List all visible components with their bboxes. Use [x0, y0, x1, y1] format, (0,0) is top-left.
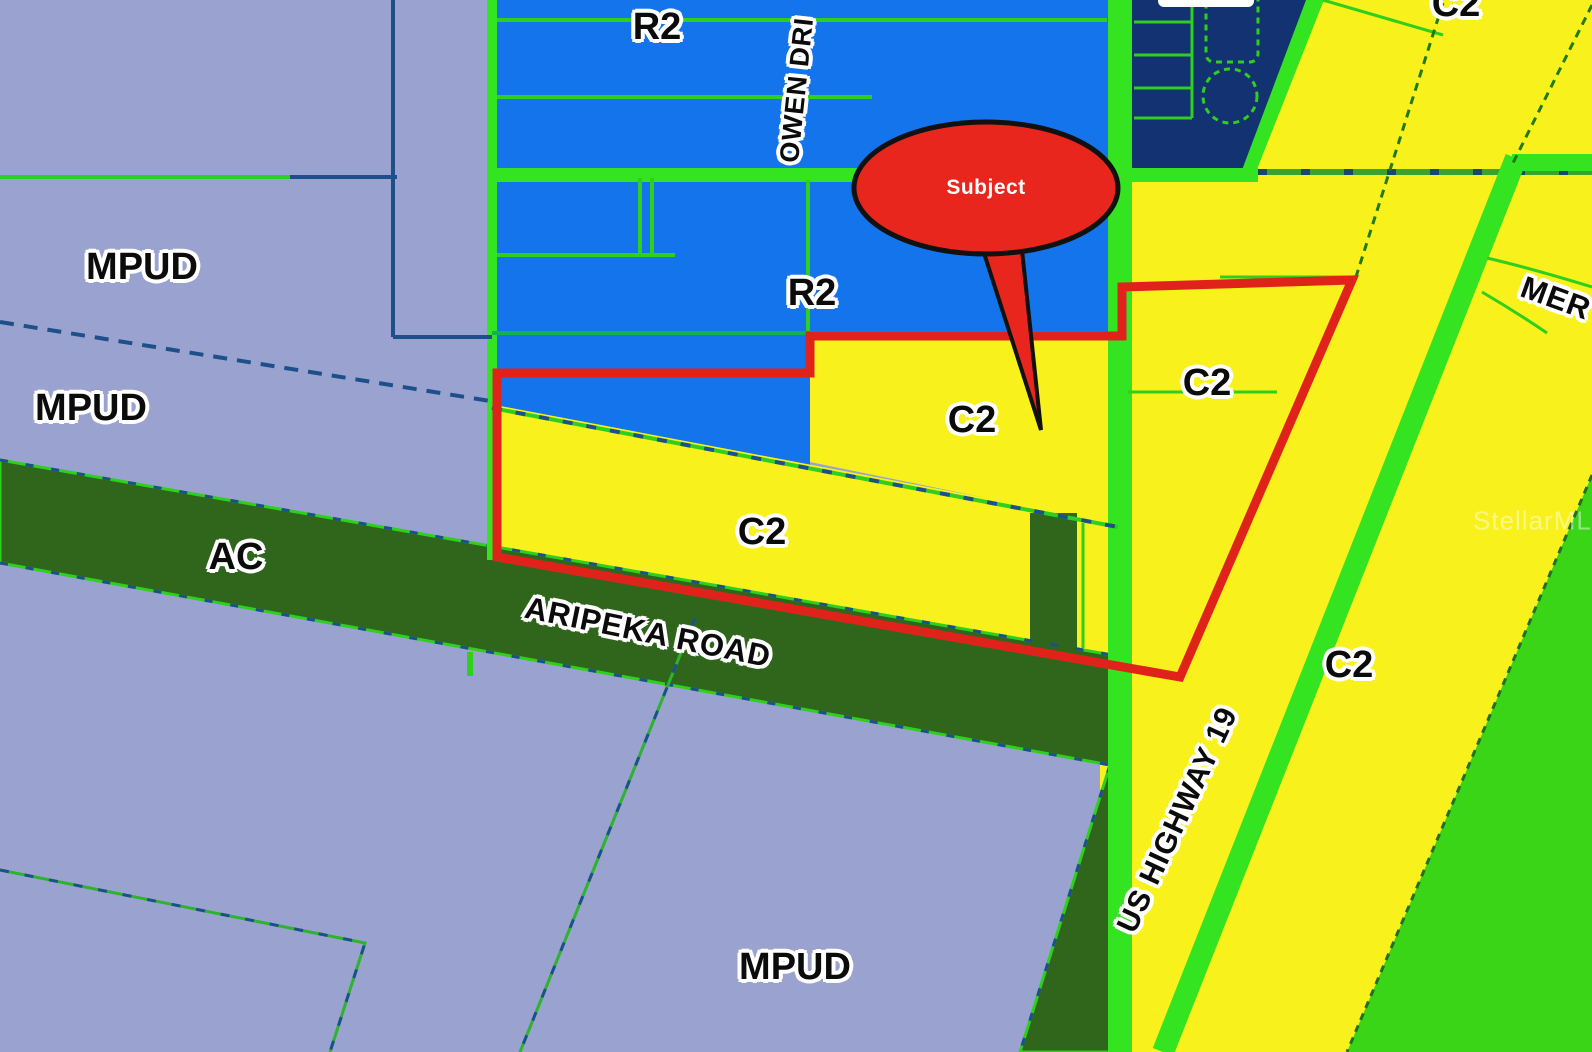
zone-label-r2-b: R2: [788, 274, 837, 312]
zoning-map: MPUD MPUD MPUD R2 R2 C2 C2 C2 C2 C2 AC A…: [0, 0, 1592, 1052]
zone-ac-strip: [1030, 513, 1077, 658]
zone-label-c2-a: C2: [948, 401, 997, 439]
zone-label-c2-d: C2: [1325, 646, 1374, 684]
zone-label-c2-b: C2: [738, 513, 787, 551]
zone-label-c2-c: C2: [1183, 364, 1232, 402]
zone-label-r2-a: R2: [633, 8, 682, 46]
zone-label-mpud-a: MPUD: [86, 248, 198, 286]
clipped-label-fragment: [1158, 0, 1254, 7]
zone-label-ac: AC: [209, 538, 264, 576]
zone-label-mpud-b: MPUD: [35, 389, 147, 427]
subject-callout-label: Subject: [946, 176, 1025, 200]
zone-label-c2-e: C2: [1432, 0, 1481, 23]
zone-label-mpud-c: MPUD: [739, 948, 851, 986]
watermark: StellarMLS: [1473, 506, 1592, 537]
